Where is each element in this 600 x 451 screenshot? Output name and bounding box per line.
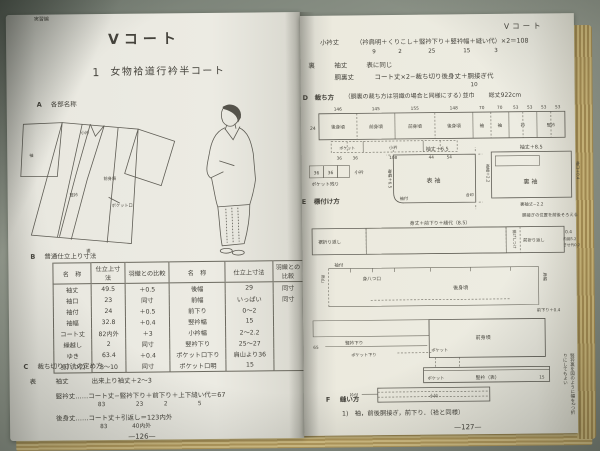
kokeritake-formula: （衿肩明＋くりこし＋竪衿下り＋竪衿幅＋縫い代）×2＝108 bbox=[356, 38, 529, 48]
sectionB-title: 普通仕立上り寸法 bbox=[44, 252, 96, 261]
strip1-brace1: 内揚5.2 bbox=[563, 236, 576, 241]
sleeve-marking-diagram: 袖丈＋6.5 袖幅＋6.5 表袖 袖付 合印 袖丈＋8.5 袖幅＋2.2 裏袖 … bbox=[385, 139, 578, 225]
sodetake-label: 袖丈 bbox=[56, 377, 69, 385]
piece-label: 袖 bbox=[480, 122, 485, 129]
cell bbox=[274, 337, 304, 348]
sectionC-title: 裁ち切り寸法の定め方 bbox=[37, 362, 102, 371]
sectionE-title: 標付け方 bbox=[314, 198, 340, 206]
cell: 29 bbox=[225, 282, 273, 294]
sleeve-front-left-label: 袖幅＋6.5 bbox=[386, 169, 393, 189]
strip3-hatch bbox=[313, 320, 429, 337]
strip1-value: 0.4 bbox=[565, 229, 572, 235]
section1-title: 女物袷道行衿半コート bbox=[110, 66, 225, 80]
cell: 袖丈 bbox=[53, 284, 91, 296]
open-book: 実習編 Vコート 1 女物袷道行衿半コート A 各部名称 小衿 袖 竪衿 前身頃… bbox=[0, 0, 600, 451]
formula-num: 40内外 bbox=[132, 424, 151, 431]
sectionC-label: C bbox=[23, 363, 28, 371]
ushiromitake-formula: 後身丈……コート丈＋引返し＝123内外 bbox=[56, 413, 173, 422]
strip1-vert-label: 揚げしつけ bbox=[512, 230, 517, 249]
ura-sodetake-label: 袖丈 bbox=[334, 61, 347, 69]
measure: 53 bbox=[527, 105, 533, 111]
strip2-katahaba: 肩幅 bbox=[542, 272, 549, 280]
col-header: 仕立上寸法 bbox=[225, 261, 273, 283]
piece-label: 前身頃 bbox=[369, 123, 383, 130]
strip1-top-label: 身丈＋前下り＋縫代（8.5） bbox=[410, 219, 470, 227]
scrap-pieces-diagram: 36 36 小衿 bbox=[307, 163, 387, 182]
cell: ゆき bbox=[54, 350, 92, 361]
sleeve-lining-name: 裏袖 bbox=[524, 177, 540, 185]
measurement-table: 名 称 仕立上寸法 羽織との比較 名 称 仕立上寸法 羽織との比較 袖丈49.5… bbox=[52, 260, 304, 374]
formula-num: 25 bbox=[428, 49, 435, 56]
kokeritake-label: 小衿丈 bbox=[320, 40, 339, 48]
strip1-hatch bbox=[366, 227, 506, 254]
scrap-num: 36 bbox=[328, 170, 334, 176]
lining-sleeve-hatch bbox=[495, 155, 539, 165]
sleeve-lining-left-label: 袖幅＋2.2 bbox=[485, 164, 491, 183]
sectionF-title: 縫い方 bbox=[340, 395, 360, 403]
coat-parts-diagram: 小衿 袖 竪衿 前身頃 ポケット口 裾 bbox=[11, 107, 175, 261]
collar-name: 竪衿（表） bbox=[476, 374, 500, 381]
formula-num: 3 bbox=[494, 48, 498, 55]
cell: ポケット口明 bbox=[170, 360, 226, 372]
cell: 63.4 bbox=[92, 350, 126, 361]
part-label-sode: 袖 bbox=[29, 152, 33, 159]
measure: 145 bbox=[372, 106, 381, 112]
cell: ＋3 bbox=[126, 327, 170, 338]
cell: 32.8 bbox=[91, 317, 125, 328]
piece-label: 後身頃 bbox=[447, 122, 461, 129]
sectionD-note: （胴裏の裁ち方は羽織の場合と同様にする） bbox=[345, 92, 465, 101]
cell bbox=[274, 359, 304, 371]
figure-outline bbox=[206, 108, 256, 255]
sleeve-front-name: 表袖 bbox=[426, 177, 442, 185]
strip2-outline bbox=[328, 267, 538, 307]
collar-num: 15 bbox=[539, 374, 545, 379]
fabric-strip bbox=[319, 111, 565, 140]
cell: 竪衿下り bbox=[170, 338, 226, 350]
cell: 袖幅 bbox=[53, 317, 91, 328]
sectionF-label: F bbox=[326, 396, 331, 404]
part-label-maemigoro: 前身頃 bbox=[103, 175, 116, 182]
cell: ＋0.5 bbox=[125, 283, 169, 295]
edition-label: 実習編 bbox=[34, 17, 49, 23]
cell: 小衿幅 bbox=[170, 327, 226, 339]
sleeve-front-right-label: 合印 bbox=[466, 191, 474, 197]
formula-num: 10 bbox=[471, 82, 478, 89]
cell: 25〜27 bbox=[226, 337, 274, 349]
cell: 袖付 bbox=[53, 306, 91, 317]
page-number-right: —127— bbox=[454, 423, 481, 432]
right-page: Vコート 小衿丈 （衿肩明＋くりこし＋竪衿下り＋竪衿幅＋縫い代）×2＝108 9… bbox=[300, 13, 578, 436]
col-header: 名 称 bbox=[169, 261, 225, 283]
strip3-pocket: ポケット bbox=[431, 346, 448, 352]
cell: 2〜2.2 bbox=[226, 326, 274, 338]
cell bbox=[273, 304, 303, 315]
strip2-ushiromigoro: 後身頃 bbox=[453, 284, 468, 291]
page-number-left: —126— bbox=[128, 433, 155, 442]
measure: 53 bbox=[541, 104, 547, 110]
sectionD-label: D bbox=[303, 94, 308, 102]
cell: 49.5 bbox=[91, 283, 125, 295]
measure: 53 bbox=[555, 104, 561, 110]
lining-sleeve-outline bbox=[491, 151, 571, 198]
sectionE-label: E bbox=[302, 198, 307, 206]
cell: いっぱい bbox=[225, 293, 273, 305]
cell: 袖口 bbox=[53, 295, 91, 306]
figure-illustration bbox=[175, 100, 289, 263]
measure: 146 bbox=[334, 107, 343, 113]
sleeve-front-bottom-label: 袖付 bbox=[400, 195, 408, 202]
tateeritake-formula: 竪衿丈……コート丈−竪衿下り＋前下り＋上下縫い代＝67 bbox=[56, 391, 226, 401]
running-head: Vコート bbox=[504, 21, 544, 31]
formula-num: 15 bbox=[463, 48, 470, 55]
douura-formula: コート丈×2−裁ち切り後身丈＋胴接ぎ代 bbox=[374, 72, 493, 81]
col-header: 羽織との比較 bbox=[273, 260, 303, 281]
scrap-caption: ポケット残り bbox=[312, 183, 340, 189]
strip3-pocketsagari: ポケット下り bbox=[351, 351, 376, 358]
measure: 148 bbox=[450, 105, 459, 111]
sleeve-lining-bottom-label: 裏袖丈−2.2 bbox=[520, 200, 544, 207]
cell: 0〜2 bbox=[225, 304, 273, 316]
part-label-tateeri: 竪衿 bbox=[70, 191, 79, 198]
formula-num: 2 bbox=[164, 401, 168, 408]
formula-num: 5 bbox=[198, 401, 202, 408]
formula-num: 83 bbox=[100, 424, 107, 431]
cell: 2 bbox=[92, 339, 126, 350]
strip1-brace2: きせ代0.2 bbox=[563, 242, 580, 247]
body-marking-diagram: 身丈＋前下り＋縫代（8.5） 裾折り返し 揚げしつけ 前折り返し 0.4 内揚5… bbox=[310, 218, 578, 407]
cell bbox=[274, 348, 304, 359]
douura-label: 胴裏丈 bbox=[334, 73, 354, 81]
cell: コート丈 bbox=[54, 328, 92, 339]
formula-num: 83 bbox=[98, 402, 105, 409]
cell: 同寸 bbox=[273, 293, 303, 304]
col-header: 仕立上寸法 bbox=[91, 262, 125, 283]
sectionD-title: 裁ち方 bbox=[315, 94, 335, 102]
strip3-num: 65 bbox=[313, 345, 319, 350]
sleeve-front-top-label: 袖丈＋6.5 bbox=[426, 145, 449, 152]
omote-label: 表 bbox=[30, 378, 37, 386]
cell: ＋0.5 bbox=[125, 305, 169, 316]
cell: 繰越し bbox=[54, 339, 92, 350]
collar-pocket-label: ポケット bbox=[428, 374, 445, 380]
cell: 同寸 bbox=[126, 338, 170, 349]
sectionB-label: B bbox=[30, 253, 35, 261]
piece-label: 竪衿 bbox=[547, 121, 556, 128]
cell: 82内外 bbox=[92, 328, 126, 339]
measure: 53 bbox=[513, 105, 519, 111]
sub-num: 36 bbox=[337, 156, 343, 161]
strip1-right-label: 前折り返し bbox=[523, 236, 545, 243]
cell: 24 bbox=[91, 306, 125, 317]
cell: 竪衿幅 bbox=[169, 316, 225, 328]
measure: 70 bbox=[497, 105, 503, 111]
cell: 同寸 bbox=[273, 281, 303, 293]
kokeri-strip-label: 小衿 bbox=[429, 393, 439, 400]
part-label-kokeri: 小衿 bbox=[81, 129, 90, 136]
scrap-num: 36 bbox=[314, 170, 320, 176]
strip2-sodetsuke: 袖付 bbox=[334, 262, 343, 269]
fabric-total-length: 総丈922cm bbox=[489, 92, 522, 100]
section1-number: 1 bbox=[92, 66, 99, 80]
page-title: Vコート bbox=[108, 31, 181, 49]
fabric-width-label: 24 bbox=[310, 126, 316, 132]
ura-sodetake-value: 表に同じ bbox=[366, 61, 392, 69]
cell: 23 bbox=[91, 295, 125, 306]
cell: 15 bbox=[226, 359, 274, 371]
left-page: 実習編 Vコート 1 女物袷道行衿半コート A 各部名称 小衿 袖 竪衿 前身頃… bbox=[6, 12, 304, 441]
scrap-label: 小衿 bbox=[354, 169, 364, 176]
piece-label: 袖 bbox=[498, 122, 503, 129]
formula-num: 23 bbox=[136, 402, 143, 409]
sodetake-formula: 出来上り袖丈＋2〜3 bbox=[92, 377, 152, 386]
collar-fold-note: 竪衿裏を図のように幅を2つ折りにしてもよい bbox=[545, 353, 576, 415]
cell: ポケット口下り bbox=[170, 349, 226, 361]
cell: 肩山より36 bbox=[226, 348, 274, 360]
cell: 前幅 bbox=[169, 294, 225, 306]
strip2-maesagari: 前下り＋0.4 bbox=[537, 306, 561, 313]
piece-label: 前身頃 bbox=[408, 123, 422, 130]
col-header: 羽織との比較 bbox=[125, 262, 169, 283]
cell: 同寸 bbox=[126, 360, 170, 372]
sub-num: 36 bbox=[353, 155, 359, 160]
cell: ＋0.4 bbox=[126, 349, 170, 360]
cell: 前下り bbox=[169, 305, 225, 317]
fabric-width-note: 並巾 bbox=[463, 92, 475, 100]
cell: 後幅 bbox=[169, 282, 225, 294]
strip1-left-label: 裾折り返し bbox=[318, 239, 341, 246]
part-label-pocket: ポケット口 bbox=[112, 202, 133, 208]
strip3-tateerisagari: 竪衿下り bbox=[345, 339, 363, 346]
piece-label: 衿 bbox=[521, 122, 526, 129]
sectionA-label: A bbox=[37, 101, 42, 109]
col-header: 名 称 bbox=[53, 263, 91, 284]
strip2-miyatsuguchi: 身八つ口 bbox=[363, 275, 382, 282]
strip3-maemigoro: 前身頃 bbox=[476, 334, 491, 341]
ura-label: 裏 bbox=[308, 62, 315, 70]
piece-label: 後身頃 bbox=[331, 124, 345, 131]
table-header-row: 名 称 仕立上寸法 羽織との比較 名 称 仕立上寸法 羽織との比較 bbox=[53, 260, 303, 284]
measure: 155 bbox=[411, 106, 420, 112]
book-photo: 実習編 Vコート 1 女物袷道行衿半コート A 各部名称 小衿 袖 竪衿 前身頃… bbox=[0, 0, 600, 451]
formula-num: 2 bbox=[398, 49, 402, 56]
cell bbox=[274, 326, 304, 337]
cell: 同寸 bbox=[125, 294, 169, 305]
formula-num: 9 bbox=[372, 49, 376, 56]
cell bbox=[273, 315, 303, 326]
sectionF-item1: 1) 袖，前後胴接ぎ，前下り．（袷と同様） bbox=[342, 409, 464, 418]
cell: ＋0.4 bbox=[125, 316, 169, 327]
coat-outline bbox=[6, 111, 176, 256]
cell: 15 bbox=[225, 315, 273, 327]
sub-label: ポケット bbox=[339, 145, 355, 150]
sleeve-lining-right-label: 袖口＋0.4 bbox=[575, 161, 581, 180]
sleeve-lining-top-label: 袖丈＋8.5 bbox=[520, 143, 543, 150]
measure: 70 bbox=[479, 105, 485, 111]
strip2-katayama: 肩山 bbox=[321, 275, 327, 283]
